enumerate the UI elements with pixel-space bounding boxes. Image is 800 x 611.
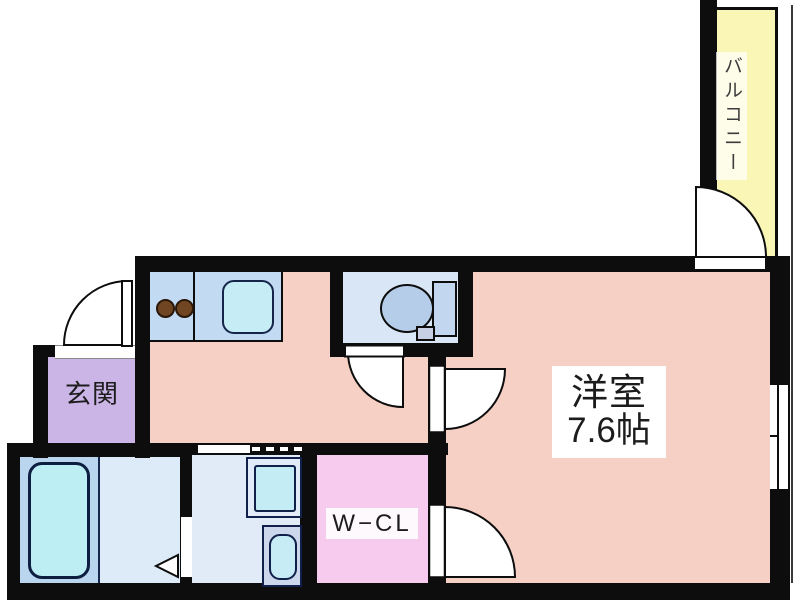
- entrance-door-arc: [64, 281, 128, 345]
- main-room-name: 洋室: [571, 374, 647, 413]
- main-room-size: 7.6帖: [567, 413, 651, 450]
- wall-bottom: [7, 583, 790, 600]
- bathroom-door-opening: [181, 517, 192, 577]
- toilet-tank-icon: [432, 281, 457, 337]
- floor-plan: 洋室 7.6帖 玄関 W−CL バルコニー: [0, 0, 800, 611]
- toilet-control-box-icon: [416, 326, 435, 341]
- washing-machine-icon: [246, 457, 302, 518]
- wall-bath-top: [7, 443, 192, 457]
- entrance-door-leaf: [122, 281, 132, 346]
- wall-balcony-left: [700, 0, 717, 258]
- wall-toilet-left: [330, 256, 343, 357]
- stove-burner-icon: [175, 299, 194, 318]
- stove-burner-icon: [156, 299, 175, 318]
- wall-central-vertical: [428, 343, 446, 585]
- window-center-tick: [770, 435, 779, 437]
- window: [770, 383, 788, 491]
- wall-toilet-bottom: [330, 343, 473, 357]
- wall-left-upper: [135, 256, 150, 458]
- wall-bath-left: [7, 443, 20, 600]
- balcony-label: バルコニー: [716, 52, 747, 180]
- main-room-label: 洋室 7.6帖: [552, 366, 666, 458]
- bathtub-icon: [28, 462, 90, 579]
- wall-toilet-right: [458, 256, 473, 357]
- washing-machine-drum: [254, 465, 296, 512]
- window-pane-line: [777, 385, 779, 489]
- closet-label: W−CL: [326, 508, 418, 539]
- eaves-line: [791, 5, 793, 583]
- washroom-sliding-door: [197, 444, 251, 454]
- vanity-sink-icon: [262, 525, 302, 587]
- wall-washroom-closet-divider: [300, 455, 317, 585]
- washroom-sliding-door-track: [252, 447, 302, 451]
- wall-entrance-top-piece: [33, 345, 55, 357]
- bathroom-divider-line: [98, 455, 100, 585]
- entrance-door-opening: [55, 345, 135, 359]
- kitchen-sink-icon: [222, 280, 274, 334]
- entrance-label: 玄関: [52, 374, 132, 410]
- kitchen-counter: [150, 272, 283, 342]
- bathroom-washarea-floor: [99, 455, 180, 585]
- vanity-bowl: [269, 534, 297, 580]
- wall-entrance-left: [33, 345, 48, 458]
